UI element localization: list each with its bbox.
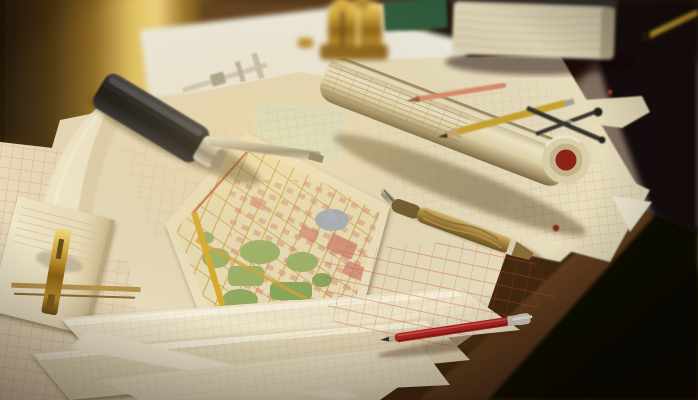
photo-architects-desk: Warmly lit architect's desk covered with…: [0, 0, 698, 400]
vignette: [0, 0, 698, 400]
scene-canvas: [0, 0, 698, 400]
